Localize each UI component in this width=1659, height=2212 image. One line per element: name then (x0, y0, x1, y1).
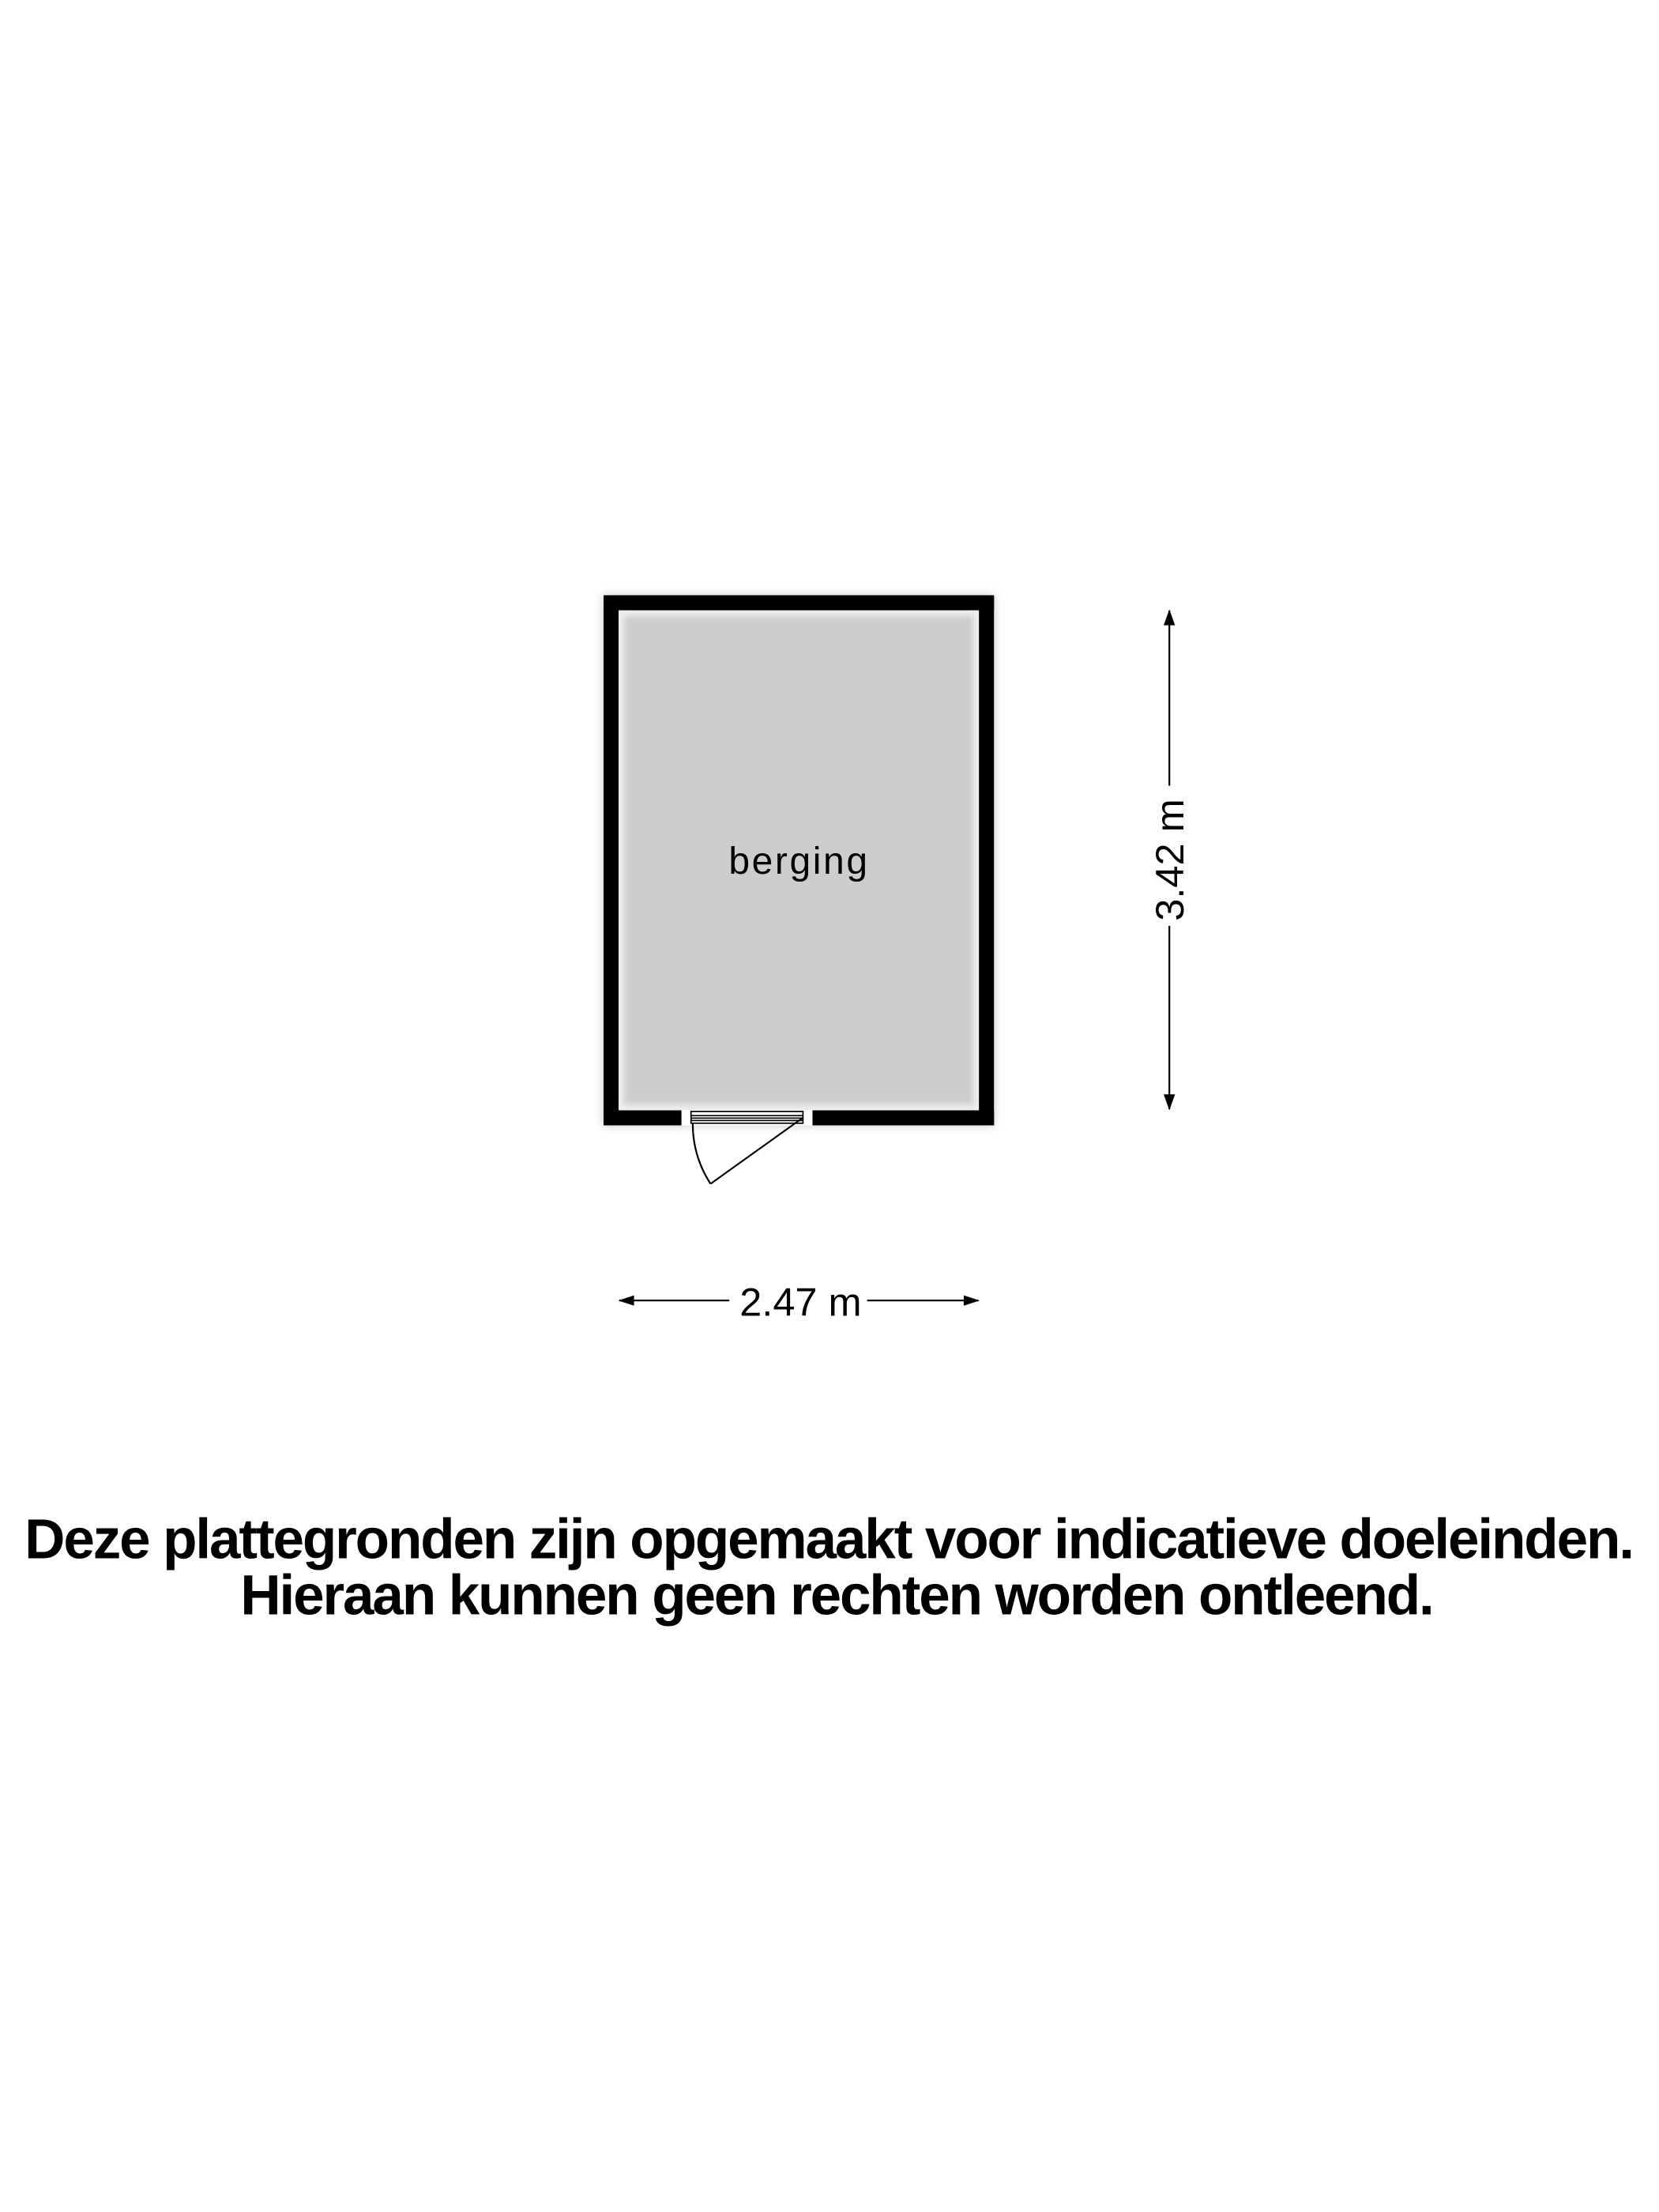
svg-text:Deze plattegronden zijn opgema: Deze plattegronden zijn opgemaakt voor i… (24, 1509, 1633, 1571)
svg-text:berging: berging (728, 841, 869, 882)
svg-text:2.47 m: 2.47 m (739, 1280, 861, 1325)
svg-text:Hieraan kunnen geen rechten wo: Hieraan kunnen geen rechten worden ontle… (240, 1565, 1432, 1627)
svg-text:3.42 m: 3.42 m (1147, 799, 1192, 920)
